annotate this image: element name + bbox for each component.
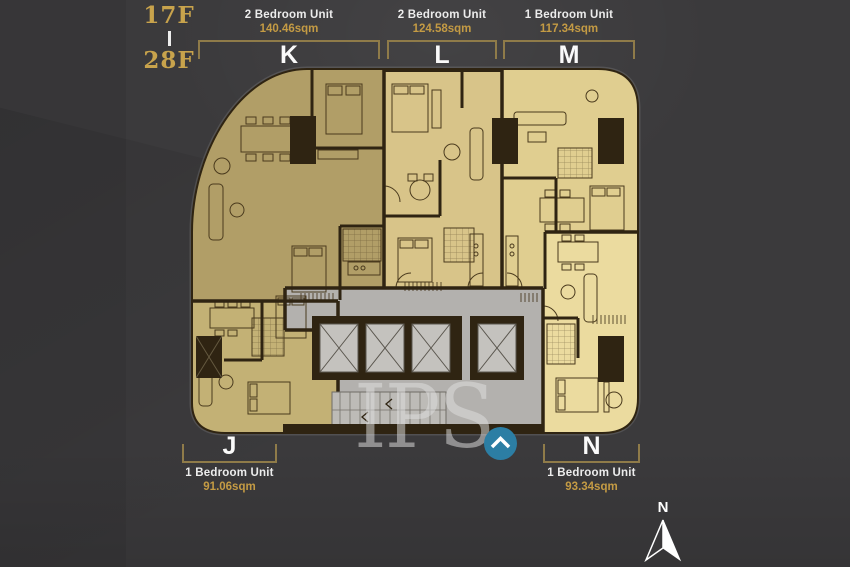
- floor-to: 28F: [133, 49, 205, 73]
- unit-label-l: 2 Bedroom Unit 124.58sqm L: [387, 8, 497, 64]
- unit-bracket: K: [198, 40, 380, 64]
- unit-area: 140.46sqm: [198, 22, 380, 36]
- unit-letter: N: [543, 434, 640, 459]
- watermark-text: IPS: [354, 372, 504, 462]
- unit-letter: K: [198, 43, 380, 68]
- unit-letter: J: [182, 434, 277, 459]
- north-arrow-icon: [640, 518, 686, 562]
- compass-label: N: [638, 500, 688, 516]
- floor-range: 17F 28F: [133, 4, 205, 73]
- unit-type: 1 Bedroom Unit: [503, 8, 635, 22]
- unit-bracket: L: [387, 40, 497, 64]
- unit-bracket: N: [543, 437, 640, 463]
- unit-letter: M: [503, 43, 635, 68]
- unit-bracket: M: [503, 40, 635, 64]
- unit-label-m: 1 Bedroom Unit 117.34sqm M: [503, 8, 635, 64]
- floor-from: 17F: [133, 4, 205, 28]
- floor-range-separator: [168, 31, 171, 46]
- unit-area: 117.34sqm: [503, 22, 635, 36]
- chevron-up-icon: [484, 427, 517, 460]
- unit-letter: L: [387, 43, 497, 68]
- unit-area: 124.58sqm: [387, 22, 497, 36]
- unit-area: 91.06sqm: [182, 480, 277, 494]
- floor-plan-drawing: [0, 0, 850, 567]
- unit-type: 1 Bedroom Unit: [543, 466, 640, 480]
- unit-label-n: N 1 Bedroom Unit 93.34sqm: [543, 437, 640, 498]
- unit-label-j: J 1 Bedroom Unit 91.06sqm: [182, 437, 277, 498]
- unit-type: 1 Bedroom Unit: [182, 466, 277, 480]
- compass-north: N: [638, 500, 688, 567]
- unit-bracket: J: [182, 437, 277, 463]
- unit-type: 2 Bedroom Unit: [387, 8, 497, 22]
- unit-label-k: 2 Bedroom Unit 140.46sqm K: [198, 8, 380, 64]
- unit-area: 93.34sqm: [543, 480, 640, 494]
- unit-type: 2 Bedroom Unit: [198, 8, 380, 22]
- floorplan-page: IPS 17F 28F 2 Bedroom Unit 140.46sqm K 2…: [0, 0, 850, 567]
